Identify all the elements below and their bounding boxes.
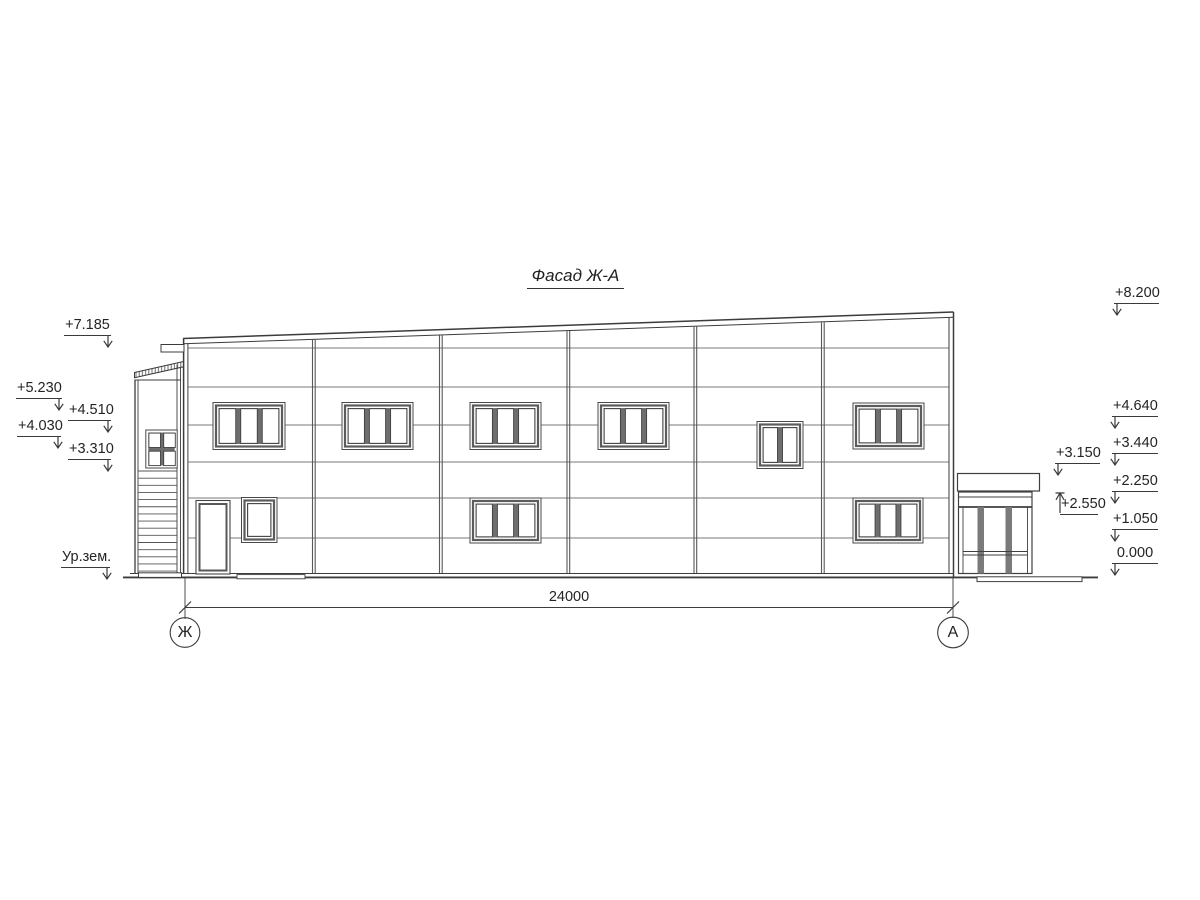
elevation-mark: +8.200 [1114, 286, 1159, 304]
elevation-mark: +4.030 [17, 419, 61, 437]
wall-panel-joint-lines [189, 348, 949, 538]
elevation-value: Ур.зем. [61, 550, 110, 568]
stair-tower-plinth [139, 573, 182, 578]
annex-roof-slab [958, 474, 1040, 492]
stair-window-pane [164, 433, 176, 447]
down-arrow-icon [1109, 563, 1121, 576]
elevation-value: 0.000 [1112, 546, 1158, 564]
elevation-value: +5.230 [16, 381, 62, 399]
elevation-mark: +4.510 [68, 403, 111, 421]
annex-body [959, 492, 1033, 574]
stair-tower-window [146, 430, 177, 468]
down-arrow-icon [1109, 416, 1121, 429]
elevation-value: +7.185 [64, 318, 111, 336]
window-pane [647, 409, 663, 444]
stair-treads [138, 471, 177, 571]
elevation-mark: +4.640 [1112, 399, 1158, 417]
window-pane [519, 409, 535, 444]
down-arrow-icon [1109, 529, 1121, 542]
window [213, 403, 285, 450]
down-arrow-icon [102, 420, 114, 433]
window [853, 498, 923, 543]
window-pane [219, 409, 236, 444]
window-pane [391, 409, 407, 444]
window-pane [497, 504, 513, 537]
elevation-value: +4.640 [1112, 399, 1158, 417]
stair-tower-roof-hatch [135, 362, 184, 378]
window-pane [763, 428, 777, 463]
window [470, 498, 541, 543]
elevation-mark-zero: 0.000 [1112, 546, 1158, 564]
annex-mullion [1006, 507, 1013, 574]
window-pane [902, 409, 918, 443]
window-pane [783, 428, 797, 463]
elevation-value: +8.200 [1114, 286, 1159, 304]
facade-windows [213, 403, 924, 544]
window-pane [369, 409, 385, 444]
drawing-title: Фасад Ж-А [527, 266, 624, 289]
elevation-value: +4.030 [17, 419, 61, 437]
window [470, 403, 541, 450]
elevation-value: +3.310 [68, 442, 111, 460]
down-arrow-icon [101, 567, 113, 580]
stair-window-pane [149, 451, 161, 465]
up-arrow-icon [1054, 492, 1066, 514]
elevation-mark-ground: Ур.зем. [61, 550, 110, 568]
down-arrow-icon [1109, 453, 1121, 466]
down-arrow-icon [1111, 303, 1123, 316]
stair-window-pane [149, 433, 161, 447]
stair-window-pane [164, 451, 176, 465]
window [757, 422, 803, 469]
elevation-mark: +5.230 [16, 381, 62, 399]
facade-drawing-sheet: Фасад Ж-А 24000 Ж А +7.185 +5.230 +4.510… [0, 0, 1200, 900]
roof-fascia-line [183, 317, 954, 344]
window [853, 403, 924, 449]
annex-platform [977, 577, 1082, 582]
axis-label-a: А [938, 625, 968, 641]
window-pane [519, 504, 535, 537]
window-pane [248, 504, 271, 537]
window [342, 403, 413, 450]
roof-edge-line [183, 312, 954, 339]
elevation-mark: +3.310 [68, 442, 111, 460]
elevation-mark: +2.250 [1112, 474, 1158, 492]
window-pane [604, 409, 620, 444]
down-arrow-icon [102, 459, 114, 472]
down-arrow-icon [1052, 463, 1064, 476]
annex-entrance [958, 474, 1083, 582]
elevation-mark: +7.185 [64, 318, 111, 336]
down-arrow-icon [1109, 491, 1121, 504]
elevation-mark: +3.440 [1112, 436, 1158, 454]
down-arrow-icon [52, 436, 64, 449]
window-pane [901, 504, 917, 537]
window [598, 403, 669, 450]
down-arrow-icon [102, 335, 114, 348]
window-pane [880, 409, 896, 443]
window-pane [859, 409, 875, 443]
annex-mullion [978, 507, 985, 574]
window-pane [497, 409, 513, 444]
window [242, 498, 278, 543]
window-pane [880, 504, 896, 537]
window-pane [859, 504, 875, 537]
elevation-value: +3.440 [1112, 436, 1158, 454]
elevation-value: +3.150 [1055, 446, 1100, 464]
stair-tower [135, 362, 184, 578]
window-pane [241, 409, 258, 444]
door-step [237, 575, 305, 579]
down-arrow-icon [53, 398, 65, 411]
window-pane [625, 409, 641, 444]
facade-elevation-drawing [0, 0, 1200, 900]
elevation-value: +1.050 [1112, 512, 1158, 530]
elevation-value: +4.510 [68, 403, 111, 421]
roof-overhang [161, 345, 184, 353]
elevation-value: +2.250 [1112, 474, 1158, 492]
entrance-door [196, 501, 230, 575]
window-pane [348, 409, 364, 444]
elevation-mark-annex-soffit: +2.550 [1060, 497, 1098, 515]
axis-label-zh: Ж [170, 625, 200, 641]
elevation-mark-annex-roof: +3.150 [1055, 446, 1100, 464]
window-pane [476, 409, 492, 444]
window-pane [476, 504, 492, 537]
window-pane [262, 409, 279, 444]
elevation-mark: +1.050 [1112, 512, 1158, 530]
dimension-value: 24000 [534, 589, 604, 605]
